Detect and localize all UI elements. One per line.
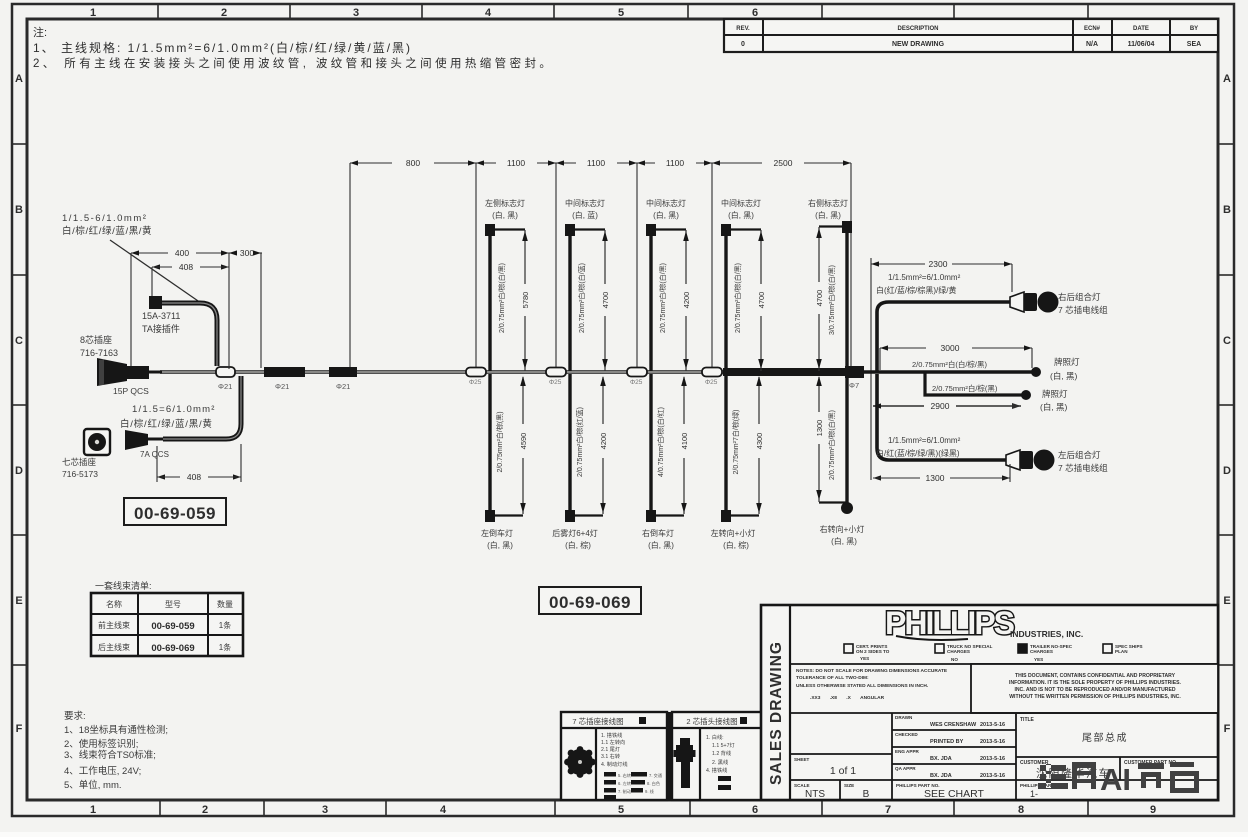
- svg-text:1/1.5mm²=6/1.0mm²: 1/1.5mm²=6/1.0mm²: [888, 273, 961, 282]
- svg-text:2: 2: [202, 804, 208, 816]
- svg-text:2013-5-16: 2013-5-16: [980, 773, 1005, 779]
- svg-text:Φ21: Φ21: [336, 382, 350, 391]
- svg-text:(白, 黑): (白, 黑): [492, 210, 518, 220]
- svg-text:DRAWN: DRAWN: [895, 715, 913, 720]
- svg-text:9. 线: 9. 线: [645, 788, 655, 794]
- svg-text:名称: 名称: [106, 599, 122, 609]
- svg-text:CHARGES: CHARGES: [1030, 649, 1053, 654]
- svg-text:7A QCS: 7A QCS: [140, 450, 169, 459]
- svg-text:(白, 黑): (白, 黑): [1050, 371, 1078, 381]
- svg-text:QA APPR: QA APPR: [895, 766, 916, 771]
- svg-text:00-69-069: 00-69-069: [549, 593, 631, 612]
- svg-text:D: D: [15, 465, 23, 477]
- svg-text:Φ25: Φ25: [630, 379, 643, 386]
- svg-text:B: B: [863, 789, 870, 800]
- svg-text:3.1 右转: 3.1 右转: [601, 752, 620, 760]
- svg-text:右侧标志灯: 右侧标志灯: [808, 198, 848, 208]
- svg-text:11/06/04: 11/06/04: [1128, 41, 1155, 48]
- svg-text:1.1 左转向: 1.1 左转向: [601, 738, 625, 746]
- svg-text:Φ25: Φ25: [705, 379, 718, 386]
- svg-text:PHILLIPS: PHILLIPS: [885, 605, 1015, 641]
- svg-text:NO: NO: [951, 657, 958, 662]
- svg-text:白(红/蓝/棕/棕黑)/绿/黄: 白(红/蓝/棕/棕黑)/绿/黄: [876, 285, 956, 295]
- svg-text:.XX3 .X8 .X: .XX3 .X8 .X ANGULAR: [810, 695, 885, 701]
- svg-text:中间标志灯: 中间标志灯: [721, 198, 761, 208]
- svg-text:一套线束清单:: 一套线束清单:: [95, 580, 152, 591]
- svg-text:(白, 蓝): (白, 蓝): [572, 210, 598, 220]
- svg-text:1/1.5-6/1.0mm²: 1/1.5-6/1.0mm²: [62, 213, 147, 224]
- svg-text:左倒车灯: 左倒车灯: [481, 528, 513, 538]
- svg-text:1条: 1条: [219, 620, 231, 630]
- svg-text:2/0.75mm²白/棕(白/蓝): 2/0.75mm²白/棕(白/蓝): [577, 263, 586, 333]
- svg-text:(白, 黑): (白, 黑): [487, 540, 513, 550]
- svg-text:400: 400: [175, 248, 189, 258]
- svg-text:PRINTED BY: PRINTED BY: [930, 739, 964, 745]
- svg-text:牌照灯: 牌照灯: [1042, 389, 1068, 399]
- svg-text:4700: 4700: [757, 292, 766, 309]
- svg-text:N/A: N/A: [1086, 41, 1098, 48]
- svg-text:1 of 1: 1 of 1: [830, 765, 856, 777]
- svg-text:CHECKED: CHECKED: [895, 732, 918, 737]
- svg-text:7 芯插电线组: 7 芯插电线组: [1058, 305, 1108, 315]
- svg-text:15P QCS: 15P QCS: [113, 386, 149, 396]
- svg-text:左侧标志灯: 左侧标志灯: [485, 198, 525, 208]
- svg-text:THIS DOCUMENT, CONTAINS CONFID: THIS DOCUMENT, CONTAINS CONFIDENTIAL AND…: [1015, 673, 1176, 679]
- svg-text:1.1 5+7灯: 1.1 5+7灯: [712, 741, 735, 749]
- svg-text:5. 右转: 5. 右转: [618, 772, 631, 779]
- svg-text:C: C: [15, 335, 23, 347]
- svg-text:7 芯插电线组: 7 芯插电线组: [1058, 463, 1108, 473]
- svg-text:WES CRENSHAW: WES CRENSHAW: [930, 722, 977, 728]
- svg-text:1100: 1100: [666, 158, 685, 168]
- svg-text:DESCRIPTION: DESCRIPTION: [897, 26, 938, 32]
- svg-text:E: E: [15, 595, 22, 607]
- svg-text:右后组合灯: 右后组合灯: [1058, 292, 1101, 302]
- svg-text:INC. AND IS NOT TO BE REPRODUC: INC. AND IS NOT TO BE REPRODUCED AND/OR …: [1014, 687, 1175, 693]
- svg-text:(白, 黑): (白, 黑): [728, 210, 754, 220]
- svg-text:(白, 黑): (白, 黑): [648, 540, 674, 550]
- svg-text:7 芯插座接线图: 7 芯插座接线图: [572, 716, 623, 726]
- svg-text:9: 9: [1150, 804, 1156, 816]
- svg-text:后雾灯6+4灯: 后雾灯6+4灯: [552, 528, 598, 538]
- svg-text:SHEET: SHEET: [794, 757, 810, 762]
- svg-text:3: 3: [353, 7, 359, 19]
- svg-text:B: B: [1223, 204, 1231, 216]
- svg-text:1: 1: [90, 804, 96, 816]
- svg-text:00-69-069: 00-69-069: [151, 643, 194, 654]
- svg-text:2/0.75mm²白/棕(白/黑): 2/0.75mm²白/棕(白/黑): [497, 263, 506, 333]
- svg-text:Φ7: Φ7: [849, 381, 859, 390]
- svg-text:4200: 4200: [682, 292, 691, 309]
- svg-text:SEE CHART: SEE CHART: [924, 788, 984, 800]
- svg-text:要求:: 要求:: [64, 710, 86, 722]
- svg-text:ON 2 SIDES TO: ON 2 SIDES TO: [856, 649, 890, 654]
- svg-text:数量: 数量: [217, 599, 233, 609]
- svg-text:2013-5-16: 2013-5-16: [980, 739, 1005, 745]
- svg-text:F: F: [1224, 723, 1231, 735]
- svg-text:716-7163: 716-7163: [80, 348, 118, 358]
- svg-text:4100: 4100: [680, 433, 689, 450]
- svg-text:2013-5-16: 2013-5-16: [980, 722, 1005, 728]
- svg-text:2/0.75mm²白(白/棕/黑): 2/0.75mm²白(白/棕/黑): [912, 359, 988, 369]
- svg-text:A: A: [15, 73, 23, 85]
- svg-text:1-: 1-: [1030, 789, 1038, 799]
- svg-text:ECN#: ECN#: [1084, 26, 1101, 32]
- svg-text:408: 408: [187, 472, 201, 482]
- svg-text:注:: 注:: [33, 25, 47, 39]
- svg-text:ENG APPR: ENG APPR: [895, 749, 920, 754]
- svg-text:SCALE: SCALE: [794, 783, 810, 788]
- svg-text:1条: 1条: [219, 642, 231, 652]
- svg-text:4: 4: [440, 804, 447, 816]
- svg-text:F: F: [16, 723, 23, 735]
- svg-text:2/0.75mm²白/棕(白/黑): 2/0.75mm²白/棕(白/黑): [733, 263, 742, 333]
- svg-text:2/0.75mm²白/棕(红/蓝): 2/0.75mm²白/棕(红/蓝): [575, 407, 584, 477]
- svg-text:DATE: DATE: [1133, 26, 1149, 32]
- svg-text:YES: YES: [860, 656, 869, 661]
- svg-text:4590: 4590: [519, 433, 528, 450]
- svg-text:6. 左转: 6. 左转: [618, 780, 631, 787]
- svg-text:2/0.75mm²白/棕(黑): 2/0.75mm²白/棕(黑): [932, 383, 998, 393]
- svg-text:白/棕/红/绿/蓝/黑/黄: 白/棕/红/绿/蓝/黑/黄: [120, 418, 213, 430]
- svg-text:8芯插座: 8芯插座: [80, 334, 112, 345]
- svg-text:1300: 1300: [815, 420, 824, 437]
- svg-text:SEA: SEA: [1187, 41, 1201, 48]
- svg-text:BY: BY: [1190, 26, 1198, 32]
- svg-text:7. 制动: 7. 制动: [618, 788, 631, 795]
- svg-text:Φ25: Φ25: [469, 379, 482, 386]
- svg-text:8. 白色: 8. 白色: [647, 780, 661, 787]
- svg-text:Φ25: Φ25: [549, 379, 562, 386]
- svg-text:白/棕/红/绿/蓝/黑/黄: 白/棕/红/绿/蓝/黑/黄: [62, 225, 152, 237]
- svg-text:1、 主线规格: 1/1.5mm²=6/1.0mm²(白/棕: 1、 主线规格: 1/1.5mm²=6/1.0mm²(白/棕/红/绿/黄/蓝/黑…: [33, 40, 412, 55]
- svg-text:4. 制动灯线: 4. 制动灯线: [601, 760, 628, 768]
- svg-text:3、线束符合TS0标准;: 3、线束符合TS0标准;: [64, 749, 156, 761]
- svg-text:00-69-059: 00-69-059: [151, 621, 194, 632]
- svg-text:(白, 黑): (白, 黑): [831, 536, 857, 546]
- svg-text:1/1.5=6/1.0mm²: 1/1.5=6/1.0mm²: [132, 404, 216, 415]
- svg-text:2/0.75mm²白/棕(黑): 2/0.75mm²白/棕(黑): [495, 411, 504, 472]
- svg-text:2、 所有主线在安装接头之间使用波纹管, 波纹管和接头之间使: 2、 所有主线在安装接头之间使用波纹管, 波纹管和接头之间使用热缩管密封。: [33, 56, 554, 70]
- svg-text:CHARGES: CHARGES: [947, 649, 970, 654]
- svg-text:2300: 2300: [929, 259, 948, 269]
- svg-text:5: 5: [618, 7, 624, 19]
- svg-text:4: 4: [485, 7, 492, 19]
- svg-text:1. 搭铁线: 1. 搭铁线: [601, 731, 622, 739]
- svg-text:15A-3711: 15A-3711: [142, 311, 180, 321]
- svg-text:NTS: NTS: [805, 789, 825, 800]
- svg-text:408: 408: [179, 262, 193, 272]
- svg-text:2500: 2500: [774, 158, 793, 168]
- svg-text:7. 交通: 7. 交通: [649, 772, 663, 779]
- svg-text:2、使用标签识别;: 2、使用标签识别;: [64, 738, 138, 750]
- svg-text:4300: 4300: [755, 433, 764, 450]
- svg-text:5: 5: [618, 804, 624, 816]
- svg-text:(白, 棕): (白, 棕): [565, 540, 591, 550]
- svg-text:型号: 型号: [165, 600, 181, 609]
- svg-text:D: D: [1223, 465, 1231, 477]
- svg-text:左后组合灯: 左后组合灯: [1058, 450, 1101, 460]
- svg-text:A: A: [1223, 73, 1231, 85]
- svg-text:00-69-059: 00-69-059: [134, 504, 216, 523]
- svg-text:INDUSTRIES, INC.: INDUSTRIES, INC.: [1010, 629, 1083, 639]
- svg-text:C: C: [1223, 335, 1231, 347]
- svg-text:4/0.75mm²白/棕(白/红): 4/0.75mm²白/棕(白/红): [656, 407, 665, 477]
- svg-text:NEW DRAWING: NEW DRAWING: [892, 41, 945, 48]
- svg-text:0: 0: [741, 41, 745, 48]
- svg-text:1100: 1100: [587, 158, 606, 168]
- svg-text:800: 800: [406, 158, 420, 168]
- svg-text:1100: 1100: [507, 158, 526, 168]
- svg-text:前主线束: 前主线束: [98, 620, 130, 630]
- svg-text:右倒车灯: 右倒车灯: [642, 528, 674, 538]
- svg-text:7: 7: [885, 804, 891, 816]
- svg-text:UNLESS OTHERWISE STATED ALL DI: UNLESS OTHERWISE STATED ALL DIMENSIONS I…: [796, 683, 928, 689]
- svg-text:1、18坐标具有通性检测;: 1、18坐标具有通性检测;: [64, 724, 168, 736]
- svg-text:TOLERANCE OF ALL TWO-DIM:: TOLERANCE OF ALL TWO-DIM:: [796, 675, 869, 681]
- svg-text:中间标志灯: 中间标志灯: [646, 198, 686, 208]
- svg-text:SIZE: SIZE: [844, 783, 854, 788]
- svg-text:2/0.75mm²7白/棕(绿): 2/0.75mm²7白/棕(绿): [731, 410, 740, 475]
- svg-text:WITHOUT THE WRITTEN PERMISSION: WITHOUT THE WRITTEN PERMISSION OF PHILLI…: [1009, 694, 1181, 700]
- svg-text:B: B: [15, 204, 23, 216]
- svg-text:(白, 棕): (白, 棕): [723, 540, 749, 550]
- svg-text:七芯插座: 七芯插座: [62, 457, 97, 467]
- svg-text:2: 2: [221, 7, 227, 19]
- svg-text:中间标志灯: 中间标志灯: [565, 198, 605, 208]
- svg-text:白/红(蓝/棕/绿/黑)(绿黑): 白/红(蓝/棕/绿/黑)(绿黑): [876, 448, 960, 458]
- svg-text:E: E: [1223, 595, 1230, 607]
- svg-text:NOTES: DO NOT SCALE FOR DRAWIN: NOTES: DO NOT SCALE FOR DRAWING DIMENSIO…: [796, 668, 948, 674]
- svg-text:1/1.5mm²=6/1.0mm²: 1/1.5mm²=6/1.0mm²: [888, 436, 961, 445]
- svg-text:3: 3: [322, 804, 328, 816]
- svg-text:1. 白线:: 1. 白线:: [706, 733, 724, 741]
- svg-text:2 芯插头接线图: 2 芯插头接线图: [686, 716, 737, 726]
- svg-text:TA接插件: TA接插件: [142, 323, 180, 334]
- svg-text:3/0.75mm²白/棕(白/黑): 3/0.75mm²白/棕(白/黑): [827, 265, 836, 335]
- svg-text:左转向+小灯: 左转向+小灯: [711, 528, 756, 538]
- svg-text:BX. JDA: BX. JDA: [930, 756, 952, 762]
- svg-text:REV.: REV.: [736, 26, 750, 32]
- svg-text:Φ21: Φ21: [275, 382, 289, 391]
- svg-text:2.1 尾灯: 2.1 尾灯: [601, 745, 620, 753]
- svg-text:牌照灯: 牌照灯: [1054, 357, 1080, 367]
- svg-text:4. 搭铁线: 4. 搭铁线: [706, 766, 727, 774]
- svg-text:3000: 3000: [941, 343, 960, 353]
- svg-text:右转向+小灯: 右转向+小灯: [820, 524, 865, 534]
- svg-text:AI: AI: [1100, 762, 1131, 797]
- svg-text:4、工作电压, 24V;: 4、工作电压, 24V;: [64, 765, 141, 777]
- svg-text:716-5173: 716-5173: [62, 469, 98, 479]
- svg-text:2013-5-16: 2013-5-16: [980, 756, 1005, 762]
- svg-text:尾部总成: 尾部总成: [1082, 731, 1128, 744]
- svg-text:(白, 黑): (白, 黑): [653, 210, 679, 220]
- svg-text:6: 6: [752, 804, 758, 816]
- svg-text:INFORMATION. IT IS THE SOLE PR: INFORMATION. IT IS THE SOLE PROPERTY OF …: [1009, 680, 1181, 686]
- svg-text:(白, 黑): (白, 黑): [815, 210, 841, 220]
- svg-text:YES: YES: [1034, 657, 1043, 662]
- svg-text:SALES DRAWING: SALES DRAWING: [768, 641, 785, 785]
- svg-text:2. 黑线: 2. 黑线: [712, 758, 728, 766]
- svg-text:(白, 黑): (白, 黑): [1040, 402, 1068, 412]
- svg-text:2/0.75mm²白/棕(白/黑): 2/0.75mm²白/棕(白/黑): [658, 263, 667, 333]
- svg-text:BX. JDA: BX. JDA: [930, 773, 952, 779]
- svg-text:1: 1: [90, 7, 96, 19]
- svg-text:8: 8: [1018, 804, 1024, 816]
- svg-text:5、单位, mm.: 5、单位, mm.: [64, 779, 122, 791]
- svg-text:6: 6: [752, 7, 758, 19]
- svg-text:1.2 背线: 1.2 背线: [712, 749, 731, 757]
- svg-text:2/0.75mm²白/棕(白/黑): 2/0.75mm²白/棕(白/黑): [827, 410, 836, 480]
- svg-text:2900: 2900: [931, 401, 950, 411]
- svg-text:PLAN: PLAN: [1115, 649, 1128, 654]
- svg-text:4700: 4700: [815, 290, 824, 307]
- svg-text:300: 300: [240, 248, 254, 258]
- svg-text:5780: 5780: [521, 292, 530, 309]
- svg-text:TITLE: TITLE: [1020, 717, 1035, 723]
- svg-text:1300: 1300: [926, 473, 945, 483]
- svg-text:Φ21: Φ21: [218, 382, 232, 391]
- svg-text:4200: 4200: [599, 433, 608, 450]
- svg-text:后主线束: 后主线束: [98, 642, 130, 652]
- svg-text:4700: 4700: [601, 292, 610, 309]
